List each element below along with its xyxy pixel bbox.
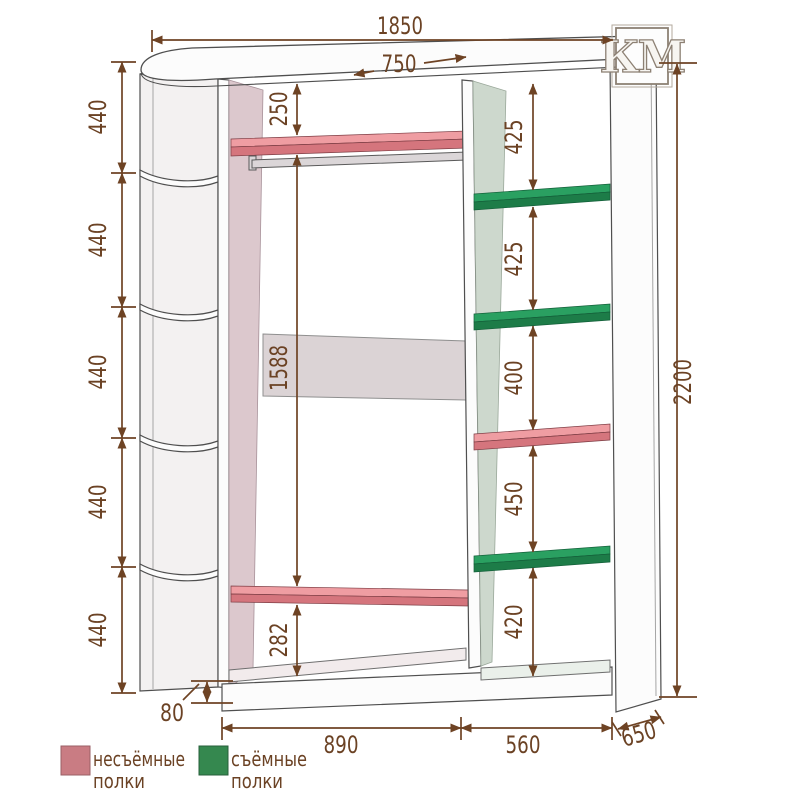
- right-side-panel: [610, 54, 661, 712]
- dim-label-plinth-height: 80: [160, 699, 184, 727]
- dim-left-gaps: 440 440 440 440 440: [84, 62, 136, 693]
- left-corner-unit: [140, 74, 218, 691]
- legend-label-removable-line1: съёмные: [231, 747, 307, 771]
- dim-label-right-gap: 450: [500, 482, 528, 517]
- legend-label-fixed-line1: несъёмные: [93, 747, 185, 771]
- legend: несъёмные полки съёмные полки: [61, 746, 307, 793]
- dim-label-main-width: 890: [324, 731, 359, 759]
- dim-label-middle-height: 1588: [265, 345, 293, 391]
- wardrobe-dimension-drawing: КМ 1850 750 440 440 440 440 440 2200: [0, 0, 800, 800]
- fixed-shelf-lower: [231, 586, 468, 606]
- legend-label-removable-line2: полки: [231, 769, 283, 793]
- dim-label-shelf-to-bottom: 282: [265, 623, 293, 658]
- dim-label-right-gap: 420: [500, 605, 528, 640]
- left-side-panel: [140, 74, 218, 691]
- hanging-rod: [249, 152, 467, 170]
- dim-label-right-gap: 400: [500, 361, 528, 396]
- dim-label-right-gap: 425: [500, 120, 528, 155]
- dim-label-left-gap: 440: [84, 355, 112, 390]
- dim-right-gaps: 425 425 400 450 420: [500, 84, 533, 676]
- legend-swatch-fixed: [61, 746, 90, 775]
- left-partition-edge: [218, 79, 229, 688]
- dim-label-overall-height: 2200: [669, 359, 697, 405]
- legend-label-fixed-line2: полки: [93, 769, 145, 793]
- dim-overall-height: 2200: [659, 63, 697, 697]
- legend-swatch-removable: [199, 746, 228, 775]
- dim-label-depth: 650: [618, 716, 659, 753]
- dim-label-right-width: 560: [506, 731, 541, 759]
- back-stiffener-band: [263, 334, 466, 400]
- dim-label-left-gap: 440: [84, 223, 112, 258]
- dim-label-left-gap: 440: [84, 100, 112, 135]
- dim-middle-height: 1588: [265, 155, 297, 586]
- drawing-canvas: КМ 1850 750 440 440 440 440 440 2200: [0, 0, 800, 800]
- dim-depth: 650: [612, 710, 664, 753]
- dim-label-top-to-shelf: 250: [265, 92, 293, 127]
- fixed-shelf-upper: [231, 131, 467, 156]
- dim-label-right-gap: 425: [500, 242, 528, 277]
- dim-top-to-shelf: 250: [265, 84, 297, 135]
- dim-label-left-gap: 440: [84, 613, 112, 648]
- dim-label-left-gap: 440: [84, 485, 112, 520]
- km-logo: КМ: [600, 25, 685, 87]
- dim-label-top-depth: 750: [382, 50, 417, 78]
- dim-label-overall-width: 1850: [377, 12, 423, 40]
